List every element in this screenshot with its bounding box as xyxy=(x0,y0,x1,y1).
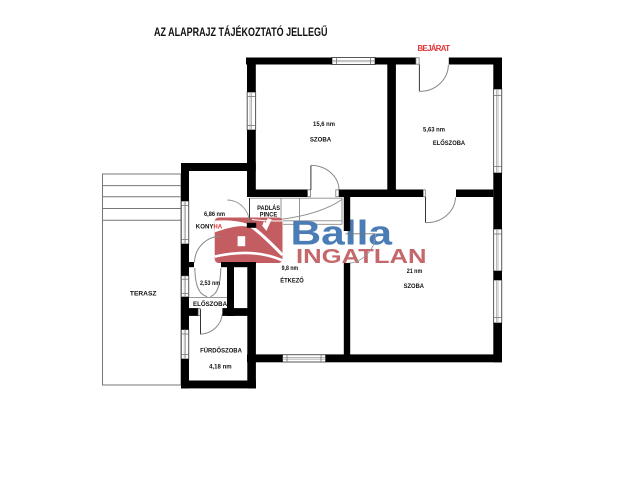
svg-text:BEJÁRAT: BEJÁRAT xyxy=(418,44,451,53)
svg-text:SZOBA: SZOBA xyxy=(310,136,332,143)
svg-text:15,6 nm: 15,6 nm xyxy=(313,121,335,128)
svg-text:9,8 nm: 9,8 nm xyxy=(282,265,299,272)
svg-text:ELŐSZOBA: ELŐSZOBA xyxy=(433,140,466,147)
svg-text:INGATLAN: INGATLAN xyxy=(296,245,427,268)
svg-text:SZOBA: SZOBA xyxy=(404,283,425,290)
svg-text:TERASZ: TERASZ xyxy=(130,290,157,297)
svg-text:4,18 nm: 4,18 nm xyxy=(209,364,232,371)
svg-text:ÉTKEZŐ: ÉTKEZŐ xyxy=(280,277,304,285)
svg-text:6,86 nm: 6,86 nm xyxy=(204,211,226,218)
svg-text:KONYHA: KONYHA xyxy=(196,223,223,230)
svg-text:PINCE: PINCE xyxy=(260,212,277,219)
svg-text:ELŐSZOBA: ELŐSZOBA xyxy=(193,301,228,308)
svg-text:AZ ALAPRAJZ TÁJÉKOZTATÓ JELLEG: AZ ALAPRAJZ TÁJÉKOZTATÓ JELLEGŰ xyxy=(154,25,328,39)
svg-text:FÜRDŐSZOBA: FÜRDŐSZOBA xyxy=(200,348,242,355)
svg-text:2,53 nm: 2,53 nm xyxy=(200,280,221,287)
svg-text:21 nm: 21 nm xyxy=(407,268,423,275)
svg-text:5,63 nm: 5,63 nm xyxy=(423,127,445,134)
